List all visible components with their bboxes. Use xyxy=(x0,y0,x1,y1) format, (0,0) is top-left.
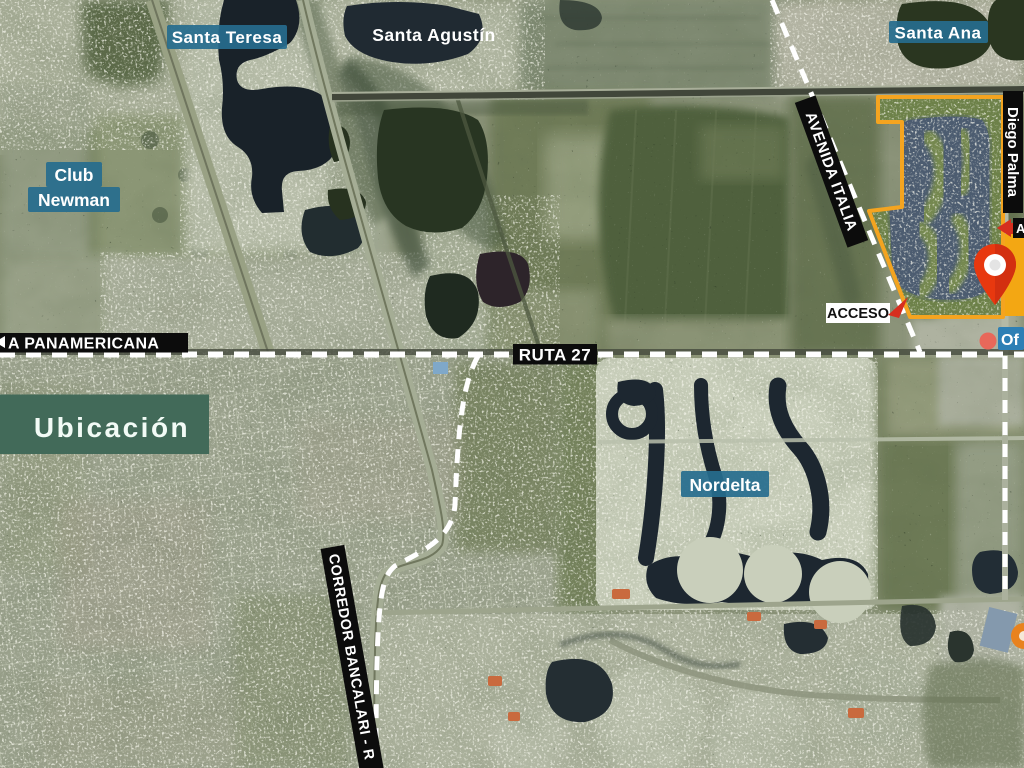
svg-text:Santa Ana: Santa Ana xyxy=(894,24,981,43)
svg-text:A: A xyxy=(1016,221,1024,236)
svg-text:Santa Agustín: Santa Agustín xyxy=(372,25,496,45)
svg-text:RUTA 27: RUTA 27 xyxy=(519,346,591,365)
svg-text:Club: Club xyxy=(55,165,94,185)
svg-text:A PANAMERICANA: A PANAMERICANA xyxy=(8,336,159,353)
svg-text:ACCESO: ACCESO xyxy=(827,306,889,322)
svg-text:Of: Of xyxy=(1001,332,1019,349)
svg-text:Ubicación: Ubicación xyxy=(34,412,190,443)
svg-text:Nordelta: Nordelta xyxy=(690,475,761,495)
svg-text:Diego Palma: Diego Palma xyxy=(1004,107,1021,198)
svg-text:Newman: Newman xyxy=(38,190,110,210)
svg-text:Santa Teresa: Santa Teresa xyxy=(172,28,283,47)
